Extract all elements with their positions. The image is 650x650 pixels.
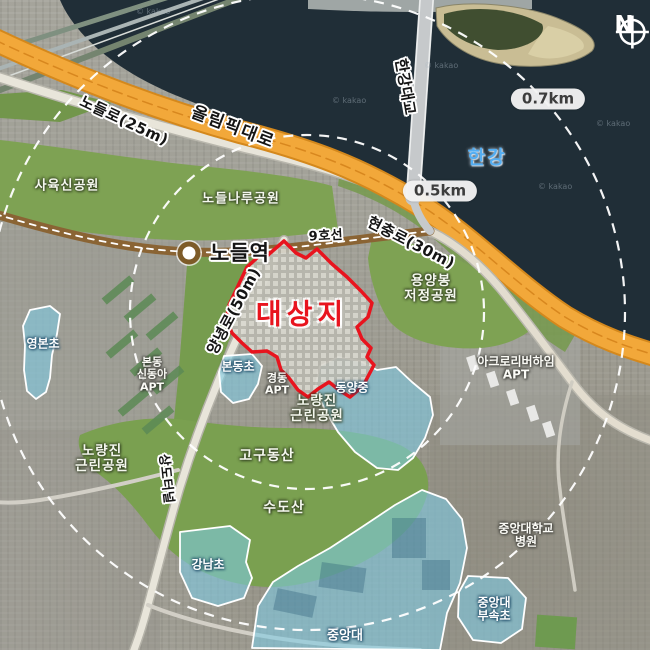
aerial-site-map: 노들로(25m) 올림픽대로 한강대교 현충로(30m) 양녕로(50m) 상도… xyxy=(0,0,650,650)
sports-field xyxy=(535,615,577,650)
school-zone-bondong xyxy=(219,354,262,403)
school-zone-gangnam xyxy=(180,526,252,606)
north-compass: N xyxy=(614,14,633,37)
map-canvas xyxy=(0,0,650,650)
north-compass-icon xyxy=(614,14,650,50)
urban-patch-riverside xyxy=(440,335,580,445)
station-marker-icon xyxy=(178,242,201,265)
